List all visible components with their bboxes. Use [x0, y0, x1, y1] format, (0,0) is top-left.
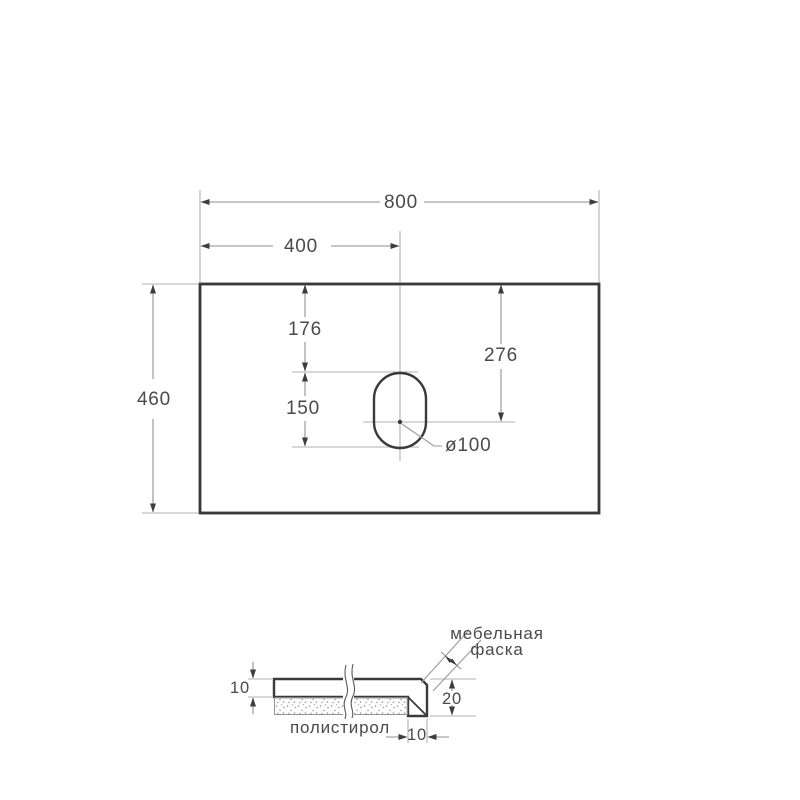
dim-label-800: 800: [384, 192, 418, 213]
dimension-hole-diameter: ø100: [402, 424, 492, 456]
top-view: 800 400 460 276 176: [137, 190, 599, 513]
technical-drawing: 800 400 460 276 176: [0, 0, 800, 800]
dimension-edge-width-10: 10: [386, 719, 449, 744]
dim-label-150: 150: [286, 398, 320, 419]
dim-label-d100: ø100: [445, 435, 492, 456]
dimension-hole-center-276: 276: [484, 285, 518, 421]
dim-label-276: 276: [484, 345, 518, 366]
substrate-label: полистирол: [290, 718, 390, 737]
dim-label-10-bottom: 10: [407, 726, 427, 744]
dim-label-176: 176: [288, 319, 322, 340]
hole-center-point: [398, 420, 402, 424]
dimension-edge-height-20: 20: [430, 679, 476, 716]
dim-label-10-left: 10: [230, 679, 250, 697]
chamfer-callout: мебельная фаска: [421, 624, 544, 691]
miter-joint-line: [408, 697, 427, 716]
section-view: 10 20 10 мебельная фаска: [230, 624, 544, 744]
dimension-top-thickness-10: 10: [230, 662, 272, 714]
dimension-hole-top-176: 176: [288, 285, 322, 371]
dim-label-20: 20: [442, 690, 462, 708]
chamfer-label-line2: фаска: [470, 640, 523, 659]
dimension-hole-length-150: 150: [286, 373, 320, 446]
dim-label-460: 460: [137, 389, 171, 410]
dim-label-400: 400: [284, 236, 318, 257]
drawing-canvas: 800 400 460 276 176: [0, 0, 800, 800]
dimension-width-800: 800: [201, 192, 598, 213]
polystyrene-layer: [275, 698, 408, 715]
dimension-depth-460: 460: [137, 285, 171, 512]
dimension-hole-offset-400: 400: [201, 236, 399, 257]
